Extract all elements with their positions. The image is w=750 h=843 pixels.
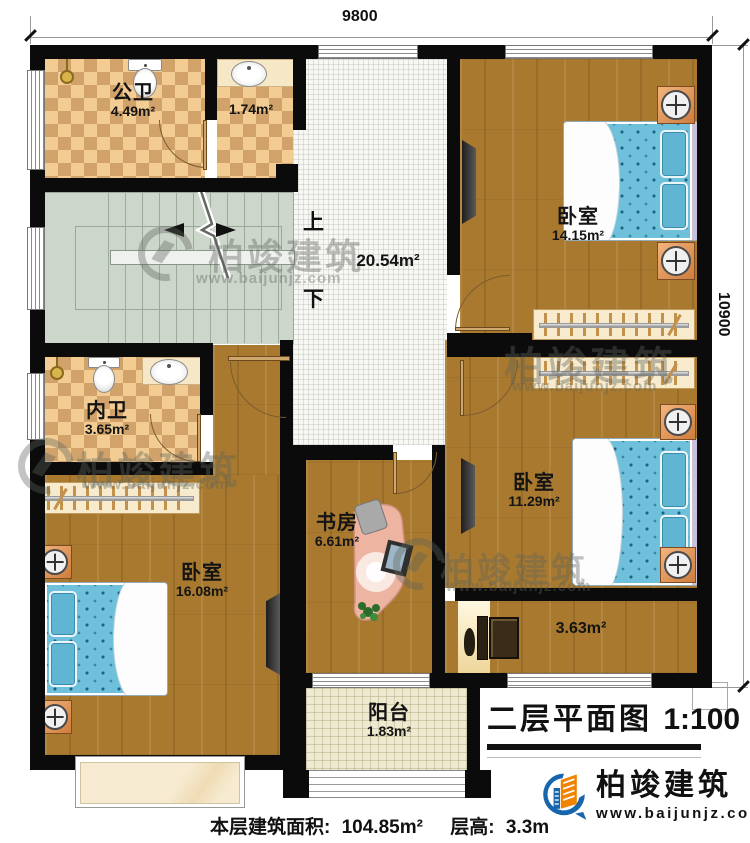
room-label-nook: 1.74m²: [196, 102, 306, 118]
lamp-icon: [42, 704, 68, 730]
bay-window-sill: [80, 762, 240, 804]
company-name: 柏竣建筑: [596, 771, 750, 801]
pillow: [660, 182, 688, 230]
wall-corner-stub: [276, 164, 298, 178]
room-label-bath-public: 公卫 4.49m²: [78, 82, 188, 120]
room-area: 3.63m²: [526, 620, 636, 638]
window-left-2: [27, 227, 45, 310]
sink-nook: [231, 61, 267, 87]
company-logo: 柏竣建筑 www.baijunjz.com: [540, 768, 750, 824]
window-hall-top: [318, 45, 418, 59]
sink-private: [150, 359, 188, 385]
pillow: [49, 591, 77, 637]
door-leaf-study: [393, 452, 397, 494]
room-label-bedroom-sw: 卧室 16.08m²: [147, 562, 257, 600]
room-area: 11.29m²: [479, 494, 589, 510]
wall-hall-right: [447, 45, 460, 275]
stairs-down-label: 下: [303, 283, 324, 313]
balcony-railing: [283, 770, 491, 798]
nightstand: [657, 242, 695, 280]
balcony-sliding-door: [312, 673, 430, 688]
wardrobe-bedroom-e: [533, 357, 695, 389]
room-label-bath-private: 内卫 3.65m²: [52, 400, 162, 438]
room-area: 20.54m²: [333, 251, 443, 270]
plan-title-text: 二层平面图: [487, 703, 652, 736]
room-name: 书房: [282, 512, 392, 534]
duvet: [572, 438, 623, 586]
wall-bath-private-right: [200, 345, 213, 415]
title-underline-thick: [487, 744, 701, 750]
wall-balcony-right: [467, 688, 480, 772]
dim-line-right: [743, 45, 744, 688]
wardrobe-bedroom-ne: [533, 309, 695, 340]
dim-ext-top-right: [712, 16, 713, 44]
room-area: 16.08m²: [147, 584, 257, 600]
footer-stats: 本层建筑面积: 104.85m² 层高: 3.3m: [210, 812, 555, 839]
tv-bedroom-e: [461, 458, 475, 534]
wall-wardrobe-divider: [530, 340, 697, 357]
room-area: 1.83m²: [334, 724, 444, 740]
wall-bath-bottom: [30, 178, 298, 192]
wardrobe-rail: [42, 496, 194, 501]
company-website: www.baijunjz.com: [596, 805, 750, 822]
wall-stairs-bottom: [30, 343, 213, 357]
room-label-bedroom-e: 卧室 11.29m²: [479, 472, 589, 510]
door-leaf-bedroom-sw: [228, 356, 290, 361]
tv-bedroom-ne: [462, 140, 476, 224]
room-label-study: 书房 6.61m²: [282, 512, 392, 550]
title-underline-thin: [487, 757, 701, 758]
door-leaf-bath-public: [203, 120, 207, 170]
room-name: 阳台: [334, 702, 444, 724]
window-bedroom-ne-top: [505, 45, 653, 59]
floor-plan: 公卫 4.49m² 1.74m² 20.54m² 上 下 卧室 14.15m² …: [0, 0, 750, 843]
light-pull-private: [50, 366, 64, 380]
room-area: 3.65m²: [52, 422, 162, 438]
vase-icon: [464, 628, 475, 656]
console-cabinet: [489, 617, 519, 659]
room-name: 内卫: [52, 400, 162, 422]
room-name: 公卫: [78, 82, 188, 104]
art-frame-icon: [477, 616, 488, 660]
footer-area-label: 本层建筑面积:: [210, 817, 330, 838]
room-name: 卧室: [523, 206, 633, 228]
room-label-bedroom-ne: 卧室 14.15m²: [523, 206, 633, 244]
logo-text: 柏竣建筑 www.baijunjz.com: [596, 771, 750, 822]
door-leaf-bedroom-e: [460, 360, 464, 416]
title-block: 二层平面图 1:100: [487, 694, 701, 758]
balcony-post-left: [283, 770, 309, 798]
stairs-up-label: 上: [303, 206, 324, 236]
dim-line-top: [30, 37, 712, 38]
dim-ext-top-left: [30, 16, 31, 44]
room-label-balcony: 阳台 1.83m²: [334, 702, 444, 740]
door-leaf-bath-private: [197, 414, 201, 462]
wardrobe-rail: [539, 323, 689, 328]
room-name: 卧室: [147, 562, 257, 584]
lamp-icon: [664, 551, 692, 579]
balcony-post-right: [465, 770, 491, 798]
window-left-1: [27, 70, 45, 170]
nightstand: [660, 404, 696, 440]
lamp-icon: [664, 408, 692, 436]
room-area: 1.74m²: [196, 102, 306, 118]
wall-balcony-left: [293, 688, 306, 772]
light-pull-public: [60, 70, 74, 84]
pillow: [660, 451, 688, 509]
plan-scale: 1:100: [663, 703, 740, 736]
wall-study-left: [293, 445, 306, 688]
room-label-hall: 20.54m²: [333, 251, 443, 270]
plan-title: 二层平面图 1:100: [487, 694, 701, 738]
lamp-icon: [42, 549, 68, 575]
nightstand: [657, 86, 695, 124]
wall-corridor-top: [455, 588, 712, 601]
room-area: 6.61m²: [282, 534, 392, 550]
footer-height-value: 3.3m: [506, 817, 549, 838]
wall-lobby-block: [447, 333, 532, 357]
room-area: 4.49m²: [78, 104, 188, 120]
room-label-corridor: 3.63m²: [526, 620, 636, 638]
wall-study-top: [293, 445, 393, 460]
window-left-3: [27, 373, 45, 440]
lamp-icon: [661, 90, 691, 120]
lamp-icon: [661, 246, 691, 276]
footer-height-label: 层高:: [450, 817, 494, 838]
window-corridor-bottom: [507, 673, 652, 688]
nightstand: [660, 547, 696, 583]
pillow: [660, 130, 688, 178]
toilet-bowl-private: [93, 365, 115, 393]
door-leaf-bedroom-ne: [455, 327, 510, 331]
dim-right-value: 10900: [714, 288, 732, 341]
pillow: [49, 641, 77, 687]
tv-bedroom-sw: [266, 593, 280, 675]
dim-top-value: 9800: [338, 8, 382, 26]
room-area: 14.15m²: [523, 228, 633, 244]
footer-area-value: 104.85m²: [342, 817, 423, 838]
room-name: 卧室: [479, 472, 589, 494]
